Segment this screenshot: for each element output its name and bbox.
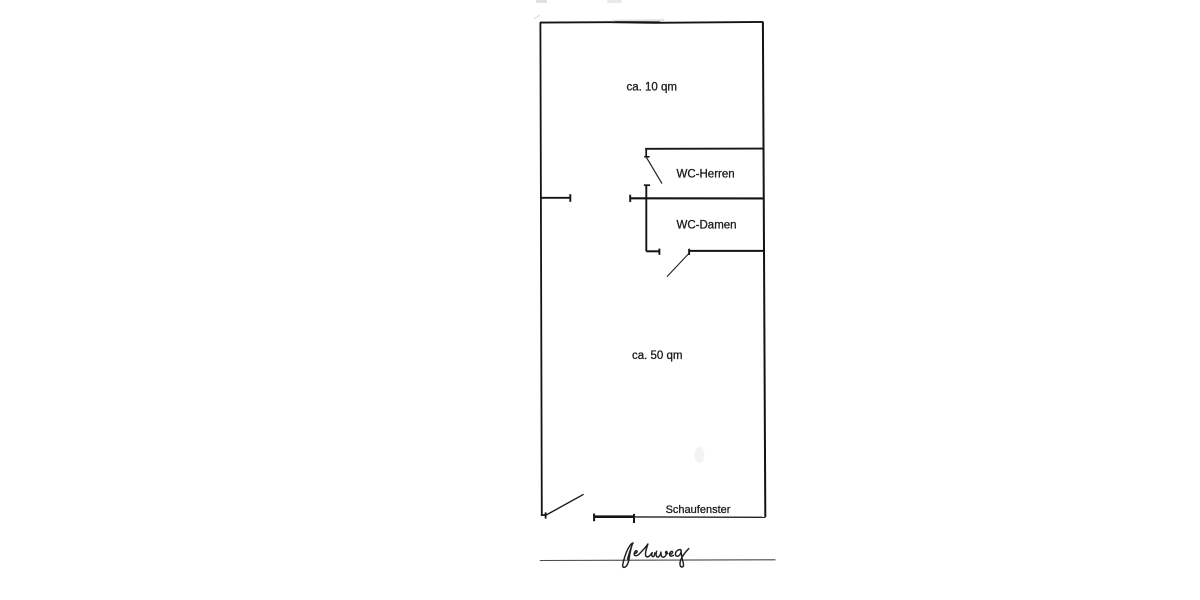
svg-text:WC-Damen: WC-Damen [677,220,737,232]
svg-text:WC-Herren: WC-Herren [677,168,735,180]
svg-text:ca. 50 qm: ca. 50 qm [632,350,683,362]
svg-text:Schaufenster: Schaufenster [666,504,731,516]
svg-text:ca. 10 qm: ca. 10 qm [627,82,678,94]
